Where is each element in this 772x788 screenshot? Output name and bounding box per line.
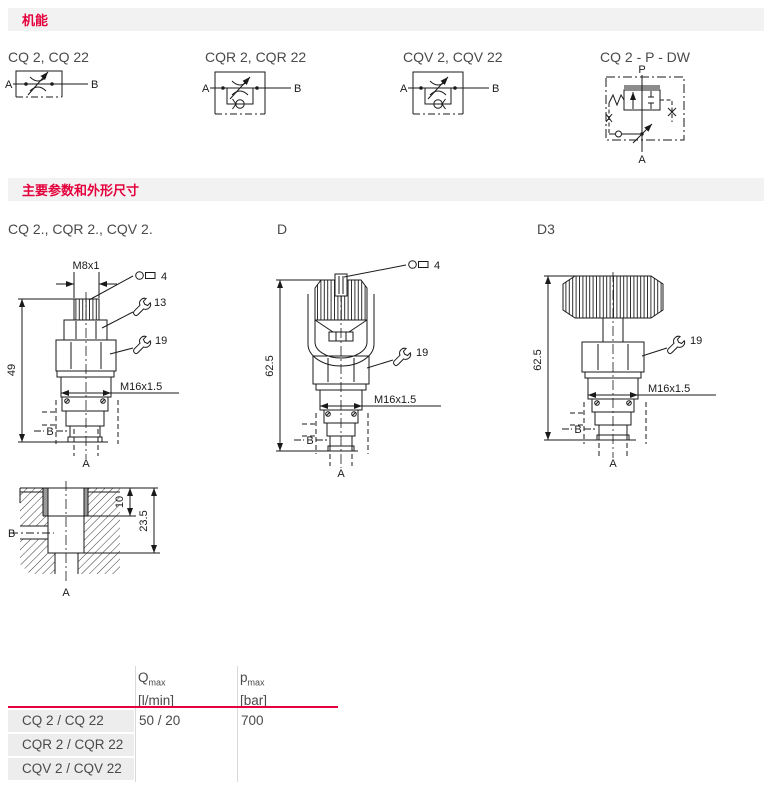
- depth-dim-counterbore: 10: [114, 496, 126, 508]
- port-label-a: A: [609, 458, 617, 470]
- port-label-b: B: [294, 83, 301, 95]
- pmax-subscript: max: [248, 678, 265, 688]
- port-label-a: A: [337, 468, 345, 480]
- hex-key-icon: [136, 272, 155, 280]
- table-cell-pmax: 700: [241, 710, 264, 732]
- port-label-b: B: [8, 528, 15, 540]
- cq2-dimension-drawing: M8x1 4 13 19 M16x1.5: [4, 254, 204, 472]
- section-title: 机能: [22, 10, 48, 29]
- section-title: 主要参数和外形尺寸: [22, 180, 139, 199]
- row-label: CQR 2 / CQR 22: [22, 737, 123, 752]
- port-label-a: A: [5, 79, 13, 91]
- pmax-symbol: p: [240, 670, 248, 685]
- table-row: CQV 2 / CQV 22: [8, 758, 134, 780]
- table-header-rule: [8, 706, 338, 708]
- port-label-a: A: [638, 154, 646, 166]
- drawing-title-d: D: [277, 221, 287, 237]
- thread-top-label: M8x1: [73, 260, 100, 272]
- cqr-valve-symbol: A B: [201, 66, 301, 124]
- drawing-title-d3: D3: [537, 221, 555, 237]
- cq2-p-dw-circuit-symbol: P A: [598, 64, 713, 166]
- wrench-icon: [134, 336, 151, 353]
- table-header-pmax: pmax [bar]: [240, 669, 267, 710]
- cavity-cross-section-drawing: B A 10 23.5: [8, 476, 173, 601]
- symbol-title-dw: CQ 2 - P - DW: [600, 49, 690, 65]
- port-label-b: B: [306, 435, 313, 447]
- symbol-title-cq: CQ 2, CQ 22: [8, 49, 89, 65]
- table-column-separator: [135, 666, 136, 782]
- port-label-a: A: [202, 83, 210, 95]
- d-version-dimension-drawing: 4 19 M16x1.5 B A: [266, 248, 476, 480]
- row-label: CQV 2 / CQV 22: [22, 761, 122, 776]
- port-label-a: A: [62, 587, 70, 599]
- hex-key-size: 4: [161, 271, 167, 283]
- port-label-b: B: [492, 83, 499, 95]
- wrench-size: 19: [690, 335, 702, 347]
- port-label-b: B: [46, 426, 53, 438]
- wrench-icon: [134, 298, 151, 315]
- wrench-icon: [668, 336, 685, 353]
- datasheet-page: 机能 CQ 2, CQ 22 CQR 2, CQR 22 CQV 2, CQV …: [0, 0, 772, 788]
- o-ring-seal: [65, 399, 106, 404]
- height-dim: 62.5: [264, 355, 276, 376]
- cq-valve-symbol: A B: [4, 66, 99, 116]
- section-header-function: 机能: [8, 8, 764, 31]
- port-label-a: A: [400, 83, 408, 95]
- hex-key-icon: [409, 261, 428, 269]
- symbol-title-cqr: CQR 2, CQR 22: [205, 49, 306, 65]
- symbol-title-cqv: CQV 2, CQV 22: [403, 49, 503, 65]
- thread-main-label: M16x1.5: [374, 394, 416, 406]
- table-header-qmax: Qmax [l/min]: [138, 669, 174, 710]
- table-row: CQR 2 / CQR 22: [8, 734, 134, 756]
- wrench-size-small: 13: [154, 297, 166, 309]
- d3-version-dimension-drawing: 19 M16x1.5 B A 62.5: [528, 248, 763, 470]
- spec-table: Qmax [l/min] pmax [bar] CQ 2 / CQ 22 50 …: [8, 666, 356, 782]
- row-label: CQ 2 / CQ 22: [22, 713, 104, 728]
- cqv-valve-symbol: A B: [399, 66, 499, 124]
- thread-main-label: M16x1.5: [648, 383, 690, 395]
- table-column-separator: [237, 666, 238, 782]
- wrench-size-large: 19: [155, 335, 167, 347]
- qmax-symbol: Q: [138, 670, 149, 685]
- wrench-size: 19: [416, 347, 428, 359]
- port-label-b: B: [574, 424, 581, 436]
- wrench-icon: [394, 348, 411, 365]
- table-row: CQ 2 / CQ 22: [8, 710, 134, 732]
- hex-key-size: 4: [434, 260, 440, 272]
- height-dim: 49: [6, 364, 18, 376]
- drawing-title-cq2: CQ 2., CQR 2., CQV 2.: [8, 221, 153, 237]
- thread-main-label: M16x1.5: [120, 381, 162, 393]
- port-label-b: B: [91, 79, 98, 91]
- table-cell-qmax: 50 / 20: [139, 710, 180, 732]
- port-label-p: P: [638, 64, 645, 76]
- section-header-params: 主要参数和外形尺寸: [8, 178, 764, 201]
- qmax-subscript: max: [149, 678, 166, 688]
- depth-dim-bore: 23.5: [138, 510, 150, 531]
- port-label-a: A: [82, 458, 90, 470]
- height-dim: 62.5: [532, 349, 544, 370]
